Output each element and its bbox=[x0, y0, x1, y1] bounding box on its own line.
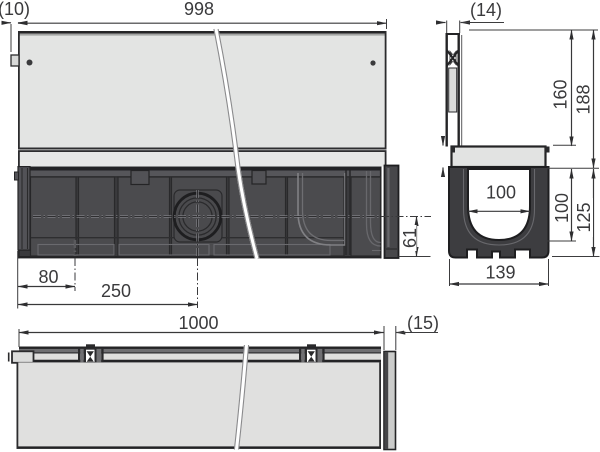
svg-text:100: 100 bbox=[552, 193, 572, 223]
svg-text:61: 61 bbox=[400, 228, 420, 248]
svg-text:80: 80 bbox=[38, 267, 58, 287]
svg-text:(10): (10) bbox=[0, 0, 30, 19]
svg-text:125: 125 bbox=[574, 202, 594, 232]
svg-text:(14): (14) bbox=[470, 0, 502, 20]
svg-text:998: 998 bbox=[184, 0, 214, 19]
svg-text:139: 139 bbox=[485, 263, 515, 283]
svg-text:250: 250 bbox=[101, 281, 131, 301]
svg-text:100: 100 bbox=[486, 183, 516, 203]
svg-text:(15): (15) bbox=[407, 313, 439, 333]
svg-text:160: 160 bbox=[551, 79, 571, 109]
svg-text:188: 188 bbox=[574, 84, 594, 114]
svg-text:1000: 1000 bbox=[178, 313, 218, 333]
